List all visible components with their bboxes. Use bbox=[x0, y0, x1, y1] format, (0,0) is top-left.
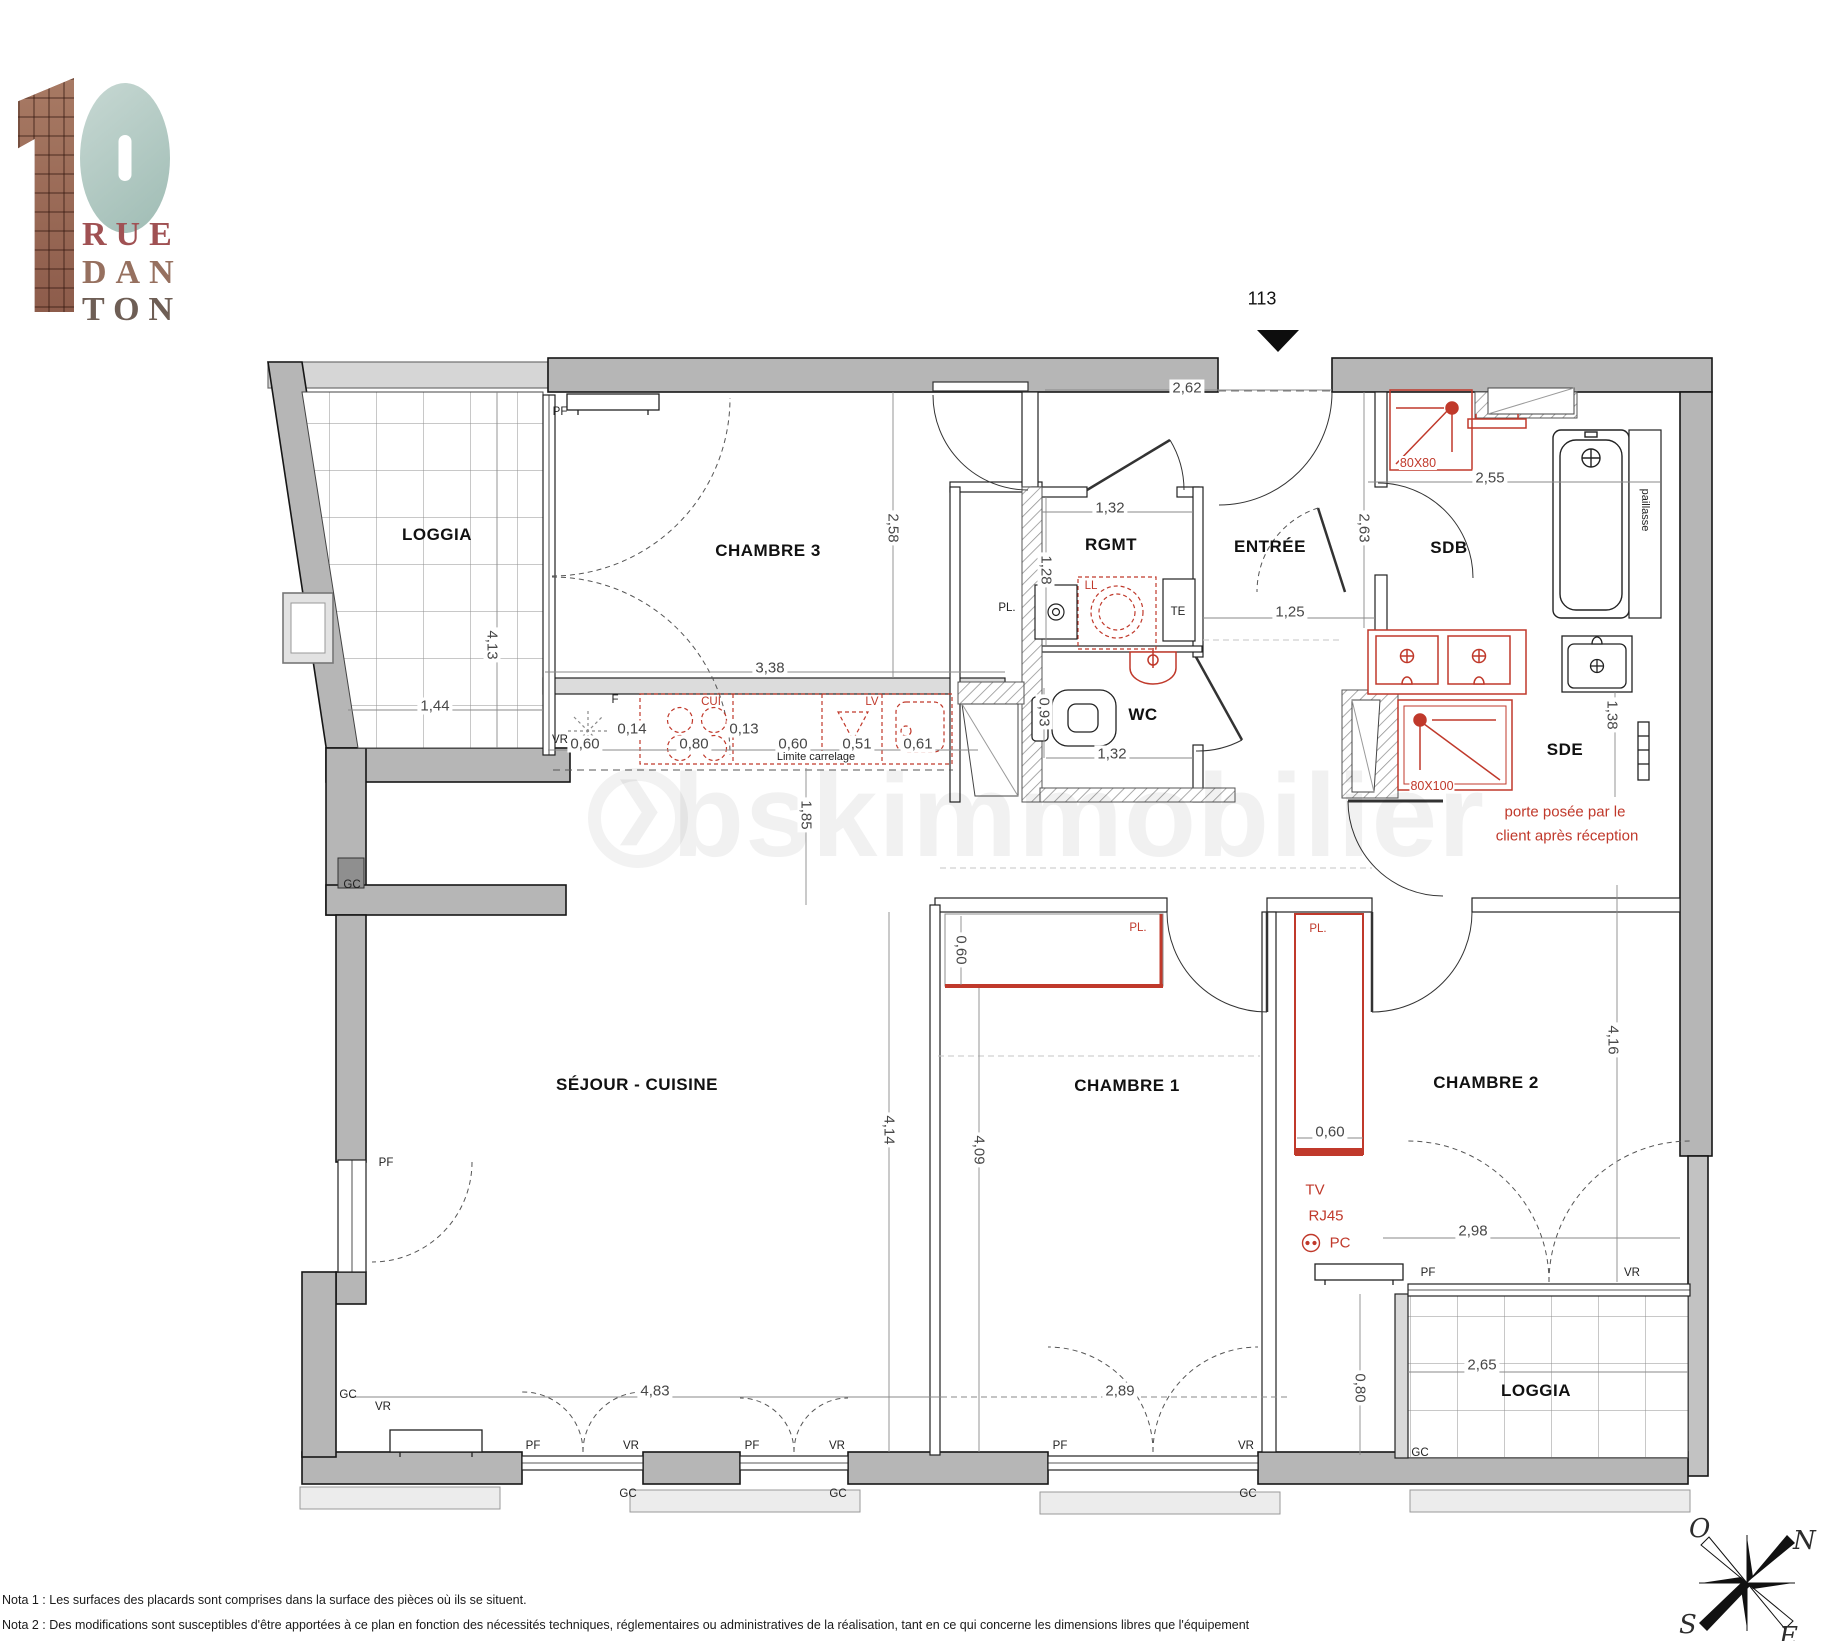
dim-loggia2-width: 2,65 bbox=[1464, 1357, 1499, 1374]
room-label-chambre3: CHAMBRE 3 bbox=[715, 541, 821, 561]
opening-pf-window1: PF bbox=[526, 1440, 541, 1452]
room-label-loggia-top: LOGGIA bbox=[402, 525, 472, 545]
opening-pf-loggia-top: PF bbox=[553, 406, 568, 418]
dim-chambre3-width: 3,38 bbox=[752, 660, 787, 677]
dim-chambre1-height: 4,09 bbox=[971, 1132, 988, 1167]
opening-vr-window2: VR bbox=[829, 1440, 845, 1452]
dim-loggia-height: 4,13 bbox=[484, 627, 501, 662]
room-label-rgmt: RGMT bbox=[1085, 535, 1137, 555]
label-pc: PC bbox=[1330, 1235, 1351, 1252]
dim-chambre1-width: 2,89 bbox=[1102, 1383, 1137, 1400]
pc-socket-icon bbox=[1303, 1235, 1320, 1252]
dim-chambre2-height: 4,16 bbox=[1605, 1022, 1622, 1057]
dim-top-entree: 2,62 bbox=[1169, 380, 1204, 397]
dim-loggia2-depth: 0,80 bbox=[1352, 1370, 1369, 1405]
opening-pf-sejour-left: PF bbox=[379, 1157, 394, 1169]
label-lave-linge: LL bbox=[1085, 580, 1098, 592]
label-placard-rgmt: PL. bbox=[998, 602, 1015, 614]
dim-sejour-height: 4,14 bbox=[881, 1112, 898, 1147]
label-tableau-electrique: TE bbox=[1171, 606, 1186, 618]
compass-o: O bbox=[1689, 1514, 1710, 1544]
dim-kitchen-1: 0,60 bbox=[567, 736, 602, 753]
label-tv: TV bbox=[1305, 1182, 1324, 1199]
logo-line-ton: TON bbox=[82, 291, 182, 329]
room-label-chambre1: CHAMBRE 1 bbox=[1074, 1076, 1180, 1096]
shower-size-80x80: 80X80 bbox=[1399, 456, 1437, 470]
shower-80x100 bbox=[1398, 700, 1512, 790]
dim-wc-height: 0,93 bbox=[1036, 694, 1053, 729]
dim-entree-width: 1,25 bbox=[1272, 604, 1307, 621]
label-frigo: F bbox=[611, 694, 618, 706]
towel-radiator bbox=[1638, 722, 1649, 780]
label-lave-vaisselle: LV bbox=[865, 696, 878, 708]
logo-line-dan: DAN bbox=[82, 254, 183, 292]
dim-placard2-width: 0,60 bbox=[1312, 1124, 1347, 1141]
opening-gc-bottom1: GC bbox=[619, 1488, 636, 1500]
room-label-entree: ENTRÉE bbox=[1234, 537, 1306, 557]
opening-pf-window2: PF bbox=[745, 1440, 760, 1452]
logo-digit-0 bbox=[80, 83, 170, 233]
nota-1: Nota 1 : Les surfaces des placards sont … bbox=[2, 1593, 527, 1607]
dim-sejour-width: 4,83 bbox=[637, 1383, 672, 1400]
opening-gc-loggia-bottom: GC bbox=[1411, 1447, 1428, 1459]
double-vasque bbox=[1368, 630, 1526, 694]
dim-loggia-width: 1,44 bbox=[417, 698, 452, 715]
label-paillasse: paillasse bbox=[1639, 487, 1651, 534]
logo-line-rue: RUE bbox=[82, 216, 181, 254]
dim-wc-width: 1,32 bbox=[1094, 746, 1129, 763]
dim-sde-height: 1,38 bbox=[1604, 697, 1621, 732]
compass-n: N bbox=[1792, 1526, 1817, 1556]
dim-kitchen-2: 0,14 bbox=[614, 721, 649, 738]
label-placard-chambre1: PL. bbox=[1129, 922, 1146, 934]
opening-vr-left-bottom: VR bbox=[375, 1401, 391, 1413]
dim-kitchen-3: 0,80 bbox=[676, 736, 711, 753]
sink-black bbox=[1562, 636, 1632, 692]
opening-gc-bottom3: GC bbox=[1239, 1488, 1256, 1500]
label-placard-chambre2: PL. bbox=[1309, 923, 1326, 935]
opening-pf-window3: PF bbox=[1053, 1440, 1068, 1452]
unit-entrance-arrow-icon bbox=[1257, 330, 1299, 352]
note-porte-client-line1: porte posée par le bbox=[1505, 804, 1626, 821]
room-label-chambre2: CHAMBRE 2 bbox=[1433, 1073, 1539, 1093]
label-limite-carrelage: Limite carrelage bbox=[775, 751, 857, 763]
opening-gc-left-bottom: GC bbox=[339, 1389, 356, 1401]
opening-gc-left-top: GC bbox=[343, 879, 360, 891]
room-label-wc: WC bbox=[1128, 705, 1157, 725]
label-rj45: RJ45 bbox=[1308, 1208, 1343, 1225]
opening-pf-loggia-bottom: PF bbox=[1421, 1267, 1436, 1279]
opening-vr-window1: VR bbox=[623, 1440, 639, 1452]
watermark-chevron: ❯ bbox=[612, 770, 666, 845]
floorplan-page: N O S E ❯ bskimmobilier RUE DAN TON 113 … bbox=[0, 0, 1848, 1641]
room-label-sdb: SDB bbox=[1430, 538, 1467, 558]
note-porte-client-line2: client après réception bbox=[1496, 828, 1639, 845]
unit-number: 113 bbox=[1248, 289, 1277, 310]
compass-e: E bbox=[1778, 1622, 1798, 1641]
shower-size-80x100: 80X100 bbox=[1409, 779, 1454, 793]
room-label-loggia-bottom: LOGGIA bbox=[1501, 1381, 1571, 1401]
hand-basin bbox=[1130, 648, 1176, 684]
dim-kitchen-depth: 1,85 bbox=[798, 797, 815, 832]
dim-rgmt-width: 1,32 bbox=[1092, 500, 1127, 517]
label-cuisiniere: CUI bbox=[701, 696, 721, 708]
room-label-sejour-cuisine: SÉJOUR - CUISINE bbox=[556, 1075, 718, 1095]
dim-chambre3-height: 2,58 bbox=[885, 510, 902, 545]
dim-rgmt-height: 1,28 bbox=[1038, 552, 1055, 587]
opening-gc-bottom2: GC bbox=[829, 1488, 846, 1500]
dim-kitchen-7: 0,61 bbox=[900, 736, 935, 753]
compass-rose: N O S E bbox=[1679, 1514, 1817, 1641]
bathtub bbox=[1553, 430, 1629, 618]
dim-placard1-depth: 0,60 bbox=[953, 932, 970, 967]
opening-vr-window3: VR bbox=[1238, 1440, 1254, 1452]
dim-kitchen-6: 0,51 bbox=[839, 736, 874, 753]
dim-sdb-height: 2,63 bbox=[1356, 510, 1373, 545]
dim-kitchen-5: 0,60 bbox=[775, 736, 810, 753]
placard-chambre2 bbox=[1295, 914, 1363, 1156]
dim-kitchen-4: 0,13 bbox=[726, 721, 761, 738]
loggia-bottom-tiles bbox=[1408, 1294, 1688, 1458]
compass-s: S bbox=[1679, 1610, 1697, 1640]
nota-2: Nota 2 : Des modifications sont suscepti… bbox=[2, 1618, 1249, 1632]
dim-sdb-width: 2,55 bbox=[1472, 470, 1507, 487]
room-label-sde: SDE bbox=[1547, 740, 1583, 760]
logo-digit-1 bbox=[18, 78, 74, 312]
logo-10-rue-danton: RUE DAN TON bbox=[14, 58, 314, 358]
opening-vr-loggia-bottom: VR bbox=[1624, 1267, 1640, 1279]
dim-chambre2-width: 2,98 bbox=[1455, 1223, 1490, 1240]
opening-vr-loggia-top: VR bbox=[552, 734, 568, 746]
